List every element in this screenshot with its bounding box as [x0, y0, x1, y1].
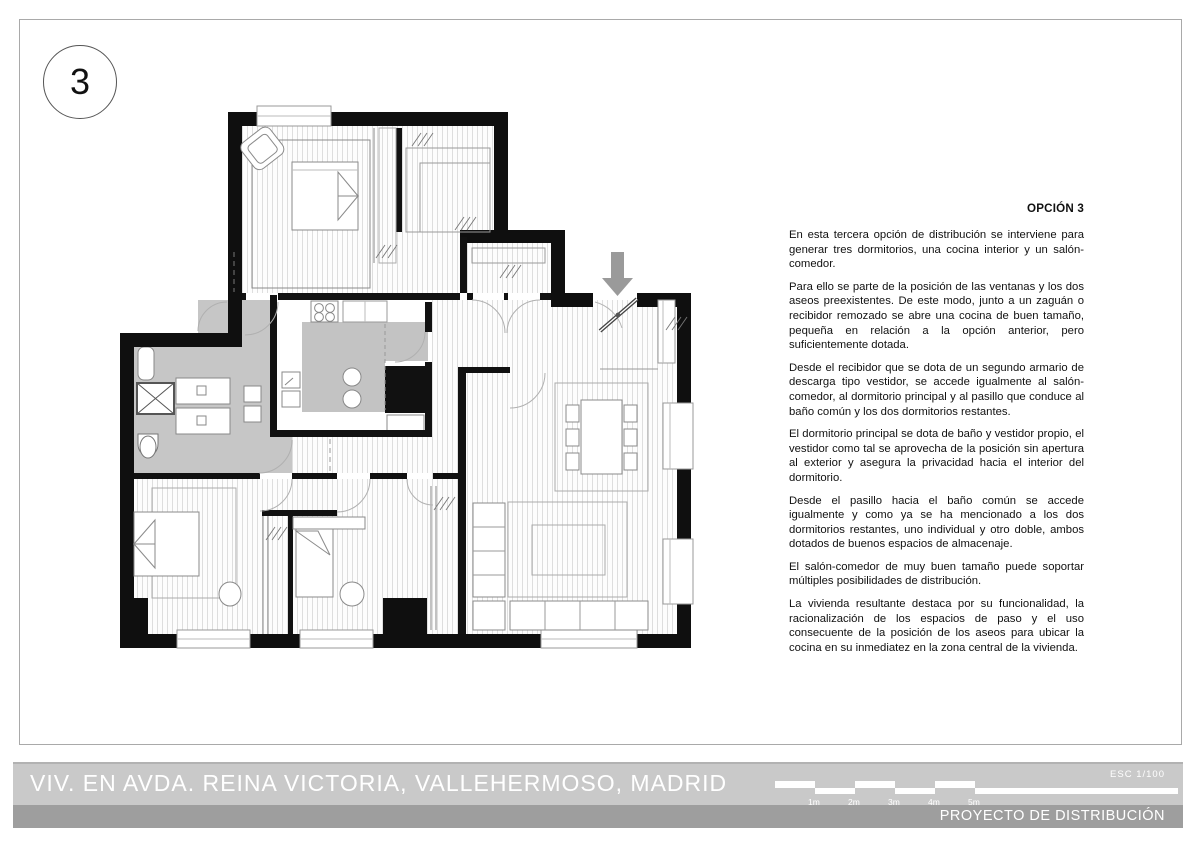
project-bar: PROYECTO DE DISTRIBUCIÓN — [13, 805, 1183, 828]
pouf-icon — [219, 582, 241, 606]
sheet-title: VIV. EN AVDA. REINA VICTORIA, VALLEHERMO… — [30, 770, 727, 797]
title-bar: VIV. EN AVDA. REINA VICTORIA, VALLEHERMO… — [13, 762, 1183, 807]
project-label: PROYECTO DE DISTRIBUCIÓN — [940, 808, 1165, 824]
architectural-sheet: { "sheet": { "number": "3" }, "text_pane… — [0, 0, 1200, 848]
paragraph: Desde el recibidor que se dota de un seg… — [789, 361, 1084, 419]
option-heading: OPCIÓN 3 — [789, 202, 1084, 215]
bed-single-icon — [296, 529, 333, 597]
paragraph: Desde el pasillo hacia el baño común se … — [789, 494, 1084, 552]
paragraph: Para ello se parte de la posición de las… — [789, 280, 1084, 353]
paragraph: El dormitorio principal se dota de baño … — [789, 427, 1084, 485]
entry-arrow-icon — [602, 252, 633, 296]
bed-double2-icon — [134, 512, 199, 576]
bed-double-icon — [292, 162, 358, 230]
paragraph: La vivienda resultante destaca por su fu… — [789, 597, 1084, 655]
paragraph: En esta tercera opción de distribución s… — [789, 228, 1084, 272]
pouf2-icon — [340, 582, 364, 606]
kitchen — [270, 295, 432, 437]
paragraph: El salón-comedor de muy buen tamaño pued… — [789, 560, 1084, 589]
description-panel: OPCIÓN 3 En esta tercera opción de distr… — [789, 202, 1084, 663]
graphic-scale-bar: 1m 2m 3m 4m 5m — [762, 764, 1178, 807]
